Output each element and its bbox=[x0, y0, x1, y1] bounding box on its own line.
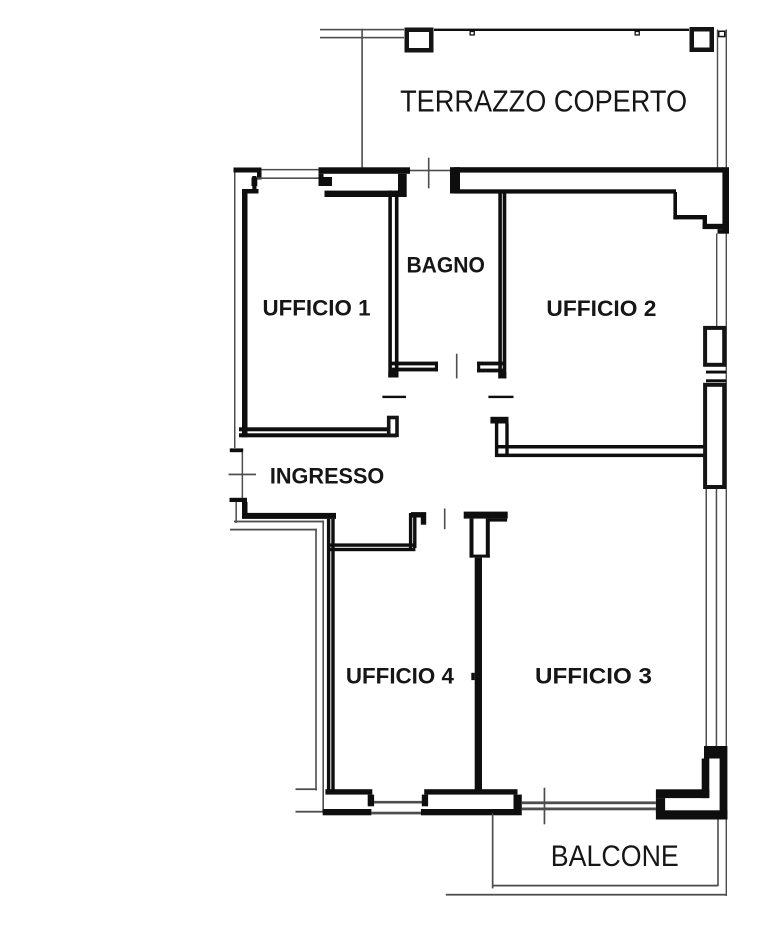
svg-text:INGRESSO: INGRESSO bbox=[270, 464, 384, 489]
svg-text:UFFICIO 3: UFFICIO 3 bbox=[535, 664, 652, 689]
svg-text:UFFICIO 4: UFFICIO 4 bbox=[346, 664, 455, 689]
svg-text:UFFICIO 1: UFFICIO 1 bbox=[263, 296, 371, 321]
svg-text:UFFICIO 2: UFFICIO 2 bbox=[546, 296, 656, 321]
svg-text:BAGNO: BAGNO bbox=[406, 253, 485, 278]
svg-text:TERRAZZO COPERTO: TERRAZZO COPERTO bbox=[400, 85, 687, 119]
svg-text:BALCONE: BALCONE bbox=[551, 840, 679, 873]
